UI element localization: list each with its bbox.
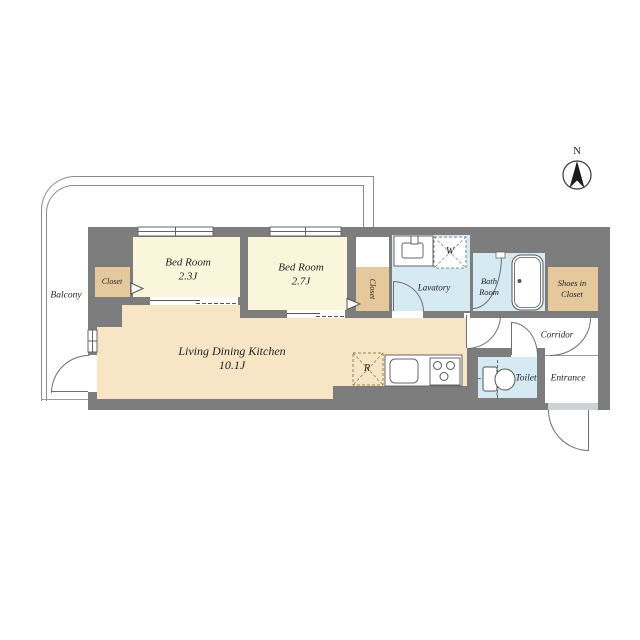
bathroom-label-line2: Room: [479, 288, 499, 297]
closet2-arrow-icon: [347, 299, 360, 310]
toilet-label: Toilet: [515, 374, 536, 384]
washing-machine-label: W: [446, 247, 454, 257]
shoes-closet-label-line1: Shoes in: [558, 279, 587, 288]
bedroom2-sliding-door-icon: [287, 310, 345, 318]
shoes-closet-label-line2: Closet: [561, 290, 583, 299]
bedroom2-window-icon: [270, 227, 341, 236]
bedroom2-label: Bed Room: [278, 263, 324, 274]
closet1-label: Closet: [102, 278, 122, 286]
closet1-arrow-icon: [131, 283, 143, 294]
north-label: N: [573, 147, 581, 158]
ldk-window-icon: [88, 330, 97, 352]
bedroom1-sliding-door-icon: [150, 297, 238, 305]
closet2-label: Closet: [368, 279, 376, 299]
refrigerator-label: R: [364, 364, 370, 374]
floorplan-canvas: N Balcony Bed Room 2.3J Bed Room 2.7J Li…: [0, 0, 640, 640]
lavatory-label: Lavatory: [418, 284, 451, 293]
kitchen-counter-icon: [385, 355, 462, 386]
toilet-fixture-icon: [483, 367, 515, 391]
corridor-label: Corridor: [541, 331, 574, 340]
bedroom2-size: 2.7J: [292, 277, 311, 288]
bedroom1-size: 2.3J: [179, 272, 198, 283]
bedroom1-label: Bed Room: [165, 258, 211, 269]
bathroom-label-line1: Bath: [481, 277, 497, 286]
entrance-label: Entrance: [551, 374, 586, 384]
bathtub-icon: [496, 252, 543, 310]
vanity-sink-icon: [394, 236, 433, 266]
balcony-label: Balcony: [50, 291, 81, 301]
bedroom1-window-icon: [138, 227, 213, 236]
ldk-size: 10.1J: [219, 359, 245, 371]
ldk-label: Living Dining Kitchen: [178, 345, 285, 357]
north-compass-icon: [563, 161, 591, 189]
floorplan-lineart: [0, 0, 640, 640]
